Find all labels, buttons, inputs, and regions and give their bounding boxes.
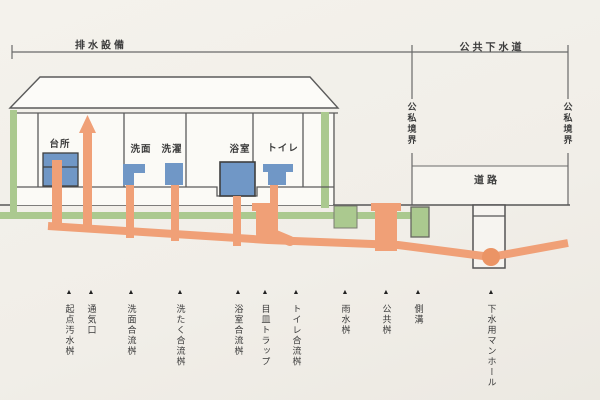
marker-triangle-icon: ▲ [177, 289, 184, 296]
marker-label: 下水用マンホール [487, 304, 496, 388]
marker-triangle-icon: ▲ [415, 289, 422, 296]
marker-triangle-icon: ▲ [342, 289, 349, 296]
marker-label: 洗たく合流桝 [176, 304, 185, 367]
room-label-laundry: 洗濯 [161, 141, 182, 155]
room-label-kitchen: 台所 [49, 136, 70, 150]
marker-label: 浴室合流桝 [234, 304, 243, 357]
marker-label: 雨水桝 [341, 304, 350, 336]
side-gutter [411, 207, 429, 237]
kitchen-drain-pipe [52, 160, 62, 230]
marker-label: 公共桝 [382, 304, 391, 336]
rainwater-masu [334, 206, 357, 228]
marker-vent-opening: ▲ 通気口 [87, 289, 96, 336]
rain-downspout [321, 112, 329, 208]
marker-side-gutter: ▲ 側溝 [414, 289, 423, 325]
marker-label: 洗面合流桝 [127, 304, 136, 357]
marker-triangle-icon: ▲ [88, 289, 95, 296]
marker-toilet-junction-masu: ▲ トイレ合流桝 [292, 289, 301, 367]
drainage-diagram: 排水設備 公共下水道 公私境界 公私境界 道路 台所 洗面 洗濯 浴室 トイレ … [0, 0, 600, 400]
floor-drain-trap [252, 203, 290, 243]
marker-label: 側溝 [414, 304, 423, 325]
marker-laundry-junction-masu: ▲ 洗たく合流桝 [176, 289, 185, 367]
public-masu [371, 203, 401, 251]
marker-label: 通気口 [87, 304, 96, 336]
marker-bathroom-junction-masu: ▲ 浴室合流桝 [234, 289, 243, 357]
house-left-wall [10, 110, 17, 212]
marker-label: 目皿トラップ [261, 304, 270, 367]
marker-origin-sewage-masu: ▲ 起点汚水桝 [65, 289, 74, 357]
marker-triangle-icon: ▲ [488, 289, 495, 296]
room-label-bathroom: 浴室 [229, 141, 250, 155]
pipe-junction-dot [482, 248, 500, 266]
boundary-label-left: 公私境界 [406, 102, 419, 146]
marker-label: トイレ合流桝 [292, 304, 301, 367]
marker-public-masu: ▲ 公共桝 [382, 289, 391, 336]
room-label-toilet: トイレ [267, 140, 299, 154]
marker-washbasin-junction-masu: ▲ 洗面合流桝 [127, 289, 136, 357]
bracket-label-drainage: 排水設備 [75, 37, 127, 52]
marker-triangle-icon: ▲ [66, 289, 73, 296]
marker-sewer-manhole: ▲ 下水用マンホール [487, 289, 496, 388]
washbasin-drain-pipe [126, 185, 134, 238]
bathroom-drain-pipe [233, 196, 241, 246]
laundry-fixture [165, 163, 183, 185]
road-label: 道路 [474, 172, 500, 187]
room-label-washbasin: 洗面 [130, 141, 151, 155]
marker-label: 起点汚水桝 [65, 304, 74, 357]
bathtub-fixture [220, 162, 255, 196]
house-roof [10, 77, 338, 108]
marker-triangle-icon: ▲ [128, 289, 135, 296]
marker-floor-drain-trap: ▲ 目皿トラップ [261, 289, 270, 367]
boundary-label-right: 公私境界 [562, 102, 575, 146]
marker-triangle-icon: ▲ [383, 289, 390, 296]
laundry-drain-pipe [171, 185, 179, 241]
marker-triangle-icon: ▲ [235, 289, 242, 296]
vent-pipe [83, 130, 92, 232]
marker-triangle-icon: ▲ [293, 289, 300, 296]
marker-rainwater-masu: ▲ 雨水桝 [341, 289, 350, 336]
marker-triangle-icon: ▲ [262, 289, 269, 296]
bracket-label-public-sewer: 公共下水道 [460, 39, 525, 54]
